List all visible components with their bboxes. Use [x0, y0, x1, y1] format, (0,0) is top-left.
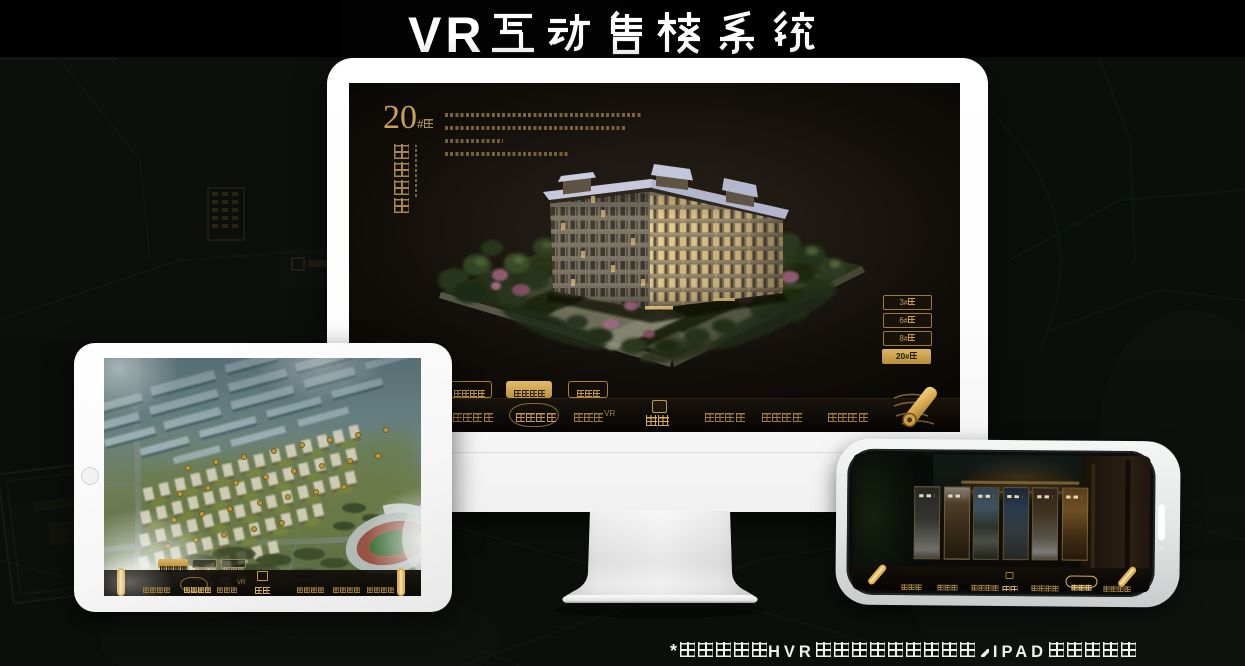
svg-text:VR: VR: [408, 7, 485, 60]
